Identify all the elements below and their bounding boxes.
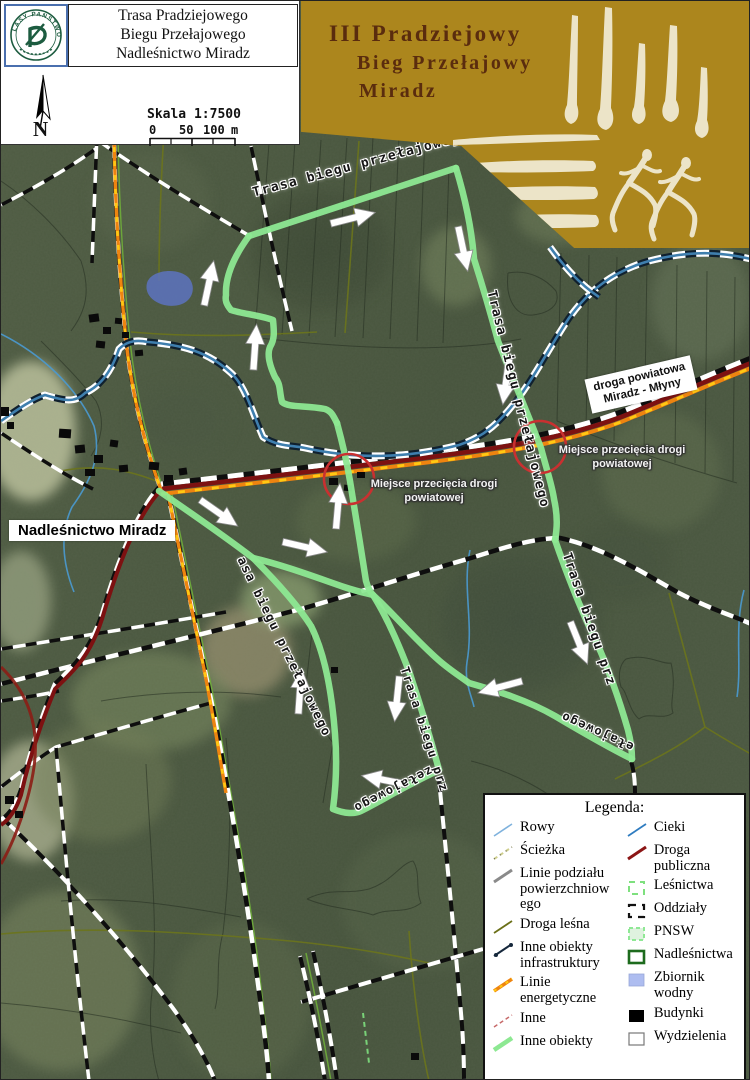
pnsw-area-icon	[625, 925, 649, 943]
scale-bar-icon	[149, 137, 244, 147]
map-title-line3: Nadleśnictwo Miradz	[116, 45, 250, 64]
legend-item-infrastruktura: Inne obiekty infrastruktury	[491, 940, 619, 971]
map-header: LASY PAŃSTWOWE Trasa Pradziejowego Biegu…	[1, 1, 300, 145]
legend-item-energetyczne: Linie energetyczne	[491, 975, 619, 1006]
district-boundary-icon	[625, 948, 649, 966]
building-icon	[625, 1007, 649, 1025]
trail-map-page: Trasa biegu przełajowego Trasa biegu prz…	[0, 0, 750, 1080]
other-line-icon	[491, 1012, 515, 1030]
public-road-line-icon	[625, 844, 649, 862]
power-line-icon	[491, 976, 515, 994]
scale-text: Skala 1:7500	[147, 107, 241, 122]
legend-item-pnsw: PNSW	[625, 924, 738, 943]
subcompartment-icon	[625, 1030, 649, 1048]
crossing-line2: powiatowej	[552, 458, 692, 472]
crossing-annotation: Miejsce przecięcia drogi powiatowej	[552, 444, 692, 472]
legend-item-rowy: Rowy	[491, 820, 619, 839]
north-label: N	[33, 117, 48, 142]
scale-unit: m	[231, 123, 238, 137]
legend-item-nadlesnictwa: Nadleśnictwa	[625, 947, 738, 966]
scale-numbers: 0 50 100 m	[147, 123, 257, 137]
legend-title: Legenda:	[491, 799, 738, 817]
legend-item-droga-publiczna: Droga publiczna	[625, 843, 738, 874]
forest-office-label: Nadleśnictwo Miradz	[9, 520, 175, 541]
legend-item-linie-podzialu: Linie podziału powierzchniow ego	[491, 866, 619, 913]
lasy-panstwowe-logo-icon: LASY PAŃSTWOWE	[7, 7, 65, 64]
scale-tick-100: 100	[203, 123, 225, 137]
legend-item-oddzialy: Oddziały	[625, 901, 738, 920]
watercourse-line-icon	[625, 821, 649, 839]
legend-item-sciezka: Ścieżka	[491, 843, 619, 862]
compartment-boundary-icon	[625, 902, 649, 920]
scale-tick-0: 0	[149, 123, 156, 137]
legend-item-inne: Inne	[491, 1011, 619, 1030]
north-arrow: N	[23, 73, 63, 141]
runner-icons	[612, 149, 699, 239]
forestry-boundary-icon	[625, 879, 649, 897]
legend-item-lesnictwa: Leśnictwa	[625, 878, 738, 897]
infrastructure-line-icon	[491, 941, 515, 959]
legend-column-right: Cieki Droga publiczna Leśnictwa Oddziały…	[625, 820, 738, 1053]
banner-title-line2: Bieg Przełajowy	[357, 52, 533, 75]
forest-service-logo: LASY PAŃSTWOWE	[4, 4, 68, 67]
path-line-icon	[491, 844, 515, 862]
other-objects-line-icon	[491, 1035, 515, 1053]
water-body-icon	[625, 971, 649, 989]
legend: Legenda: Rowy Ścieżka Linie podziału pow…	[483, 793, 746, 1080]
legend-item-wydzielenia: Wydzielenia	[625, 1029, 738, 1048]
map-title: Trasa Pradziejowego Biegu Przełajowego N…	[68, 4, 298, 67]
legend-item-zbiornik: Zbiornik wodny	[625, 970, 738, 1001]
crossing-line1: Miejsce przecięcia drogi	[359, 478, 509, 492]
banner-title-line3: Miradz	[359, 80, 437, 103]
legend-item-inne-obiekty: Inne obiekty	[491, 1034, 619, 1053]
banner-title-line1: III Pradziejowy	[329, 21, 522, 47]
scale-tick-50: 50	[179, 123, 193, 137]
forest-road-line-icon	[491, 918, 515, 936]
crossing-line2: powiatowej	[359, 492, 509, 506]
map-title-line2: Biegu Przełajowego	[120, 26, 245, 45]
ditch-line-icon	[491, 821, 515, 839]
map-title-line1: Trasa Pradziejowego	[118, 7, 248, 26]
legend-item-cieki: Cieki	[625, 820, 738, 839]
division-line-icon	[491, 867, 515, 885]
crossing-annotation: Miejsce przecięcia drogi powiatowej	[359, 478, 509, 506]
crossing-line1: Miejsce przecięcia drogi	[552, 444, 692, 458]
legend-item-droga-lesna: Droga leśna	[491, 917, 619, 936]
legend-item-budynki: Budynki	[625, 1006, 738, 1025]
legend-column-left: Rowy Ścieżka Linie podziału powierzchnio…	[491, 820, 619, 1053]
